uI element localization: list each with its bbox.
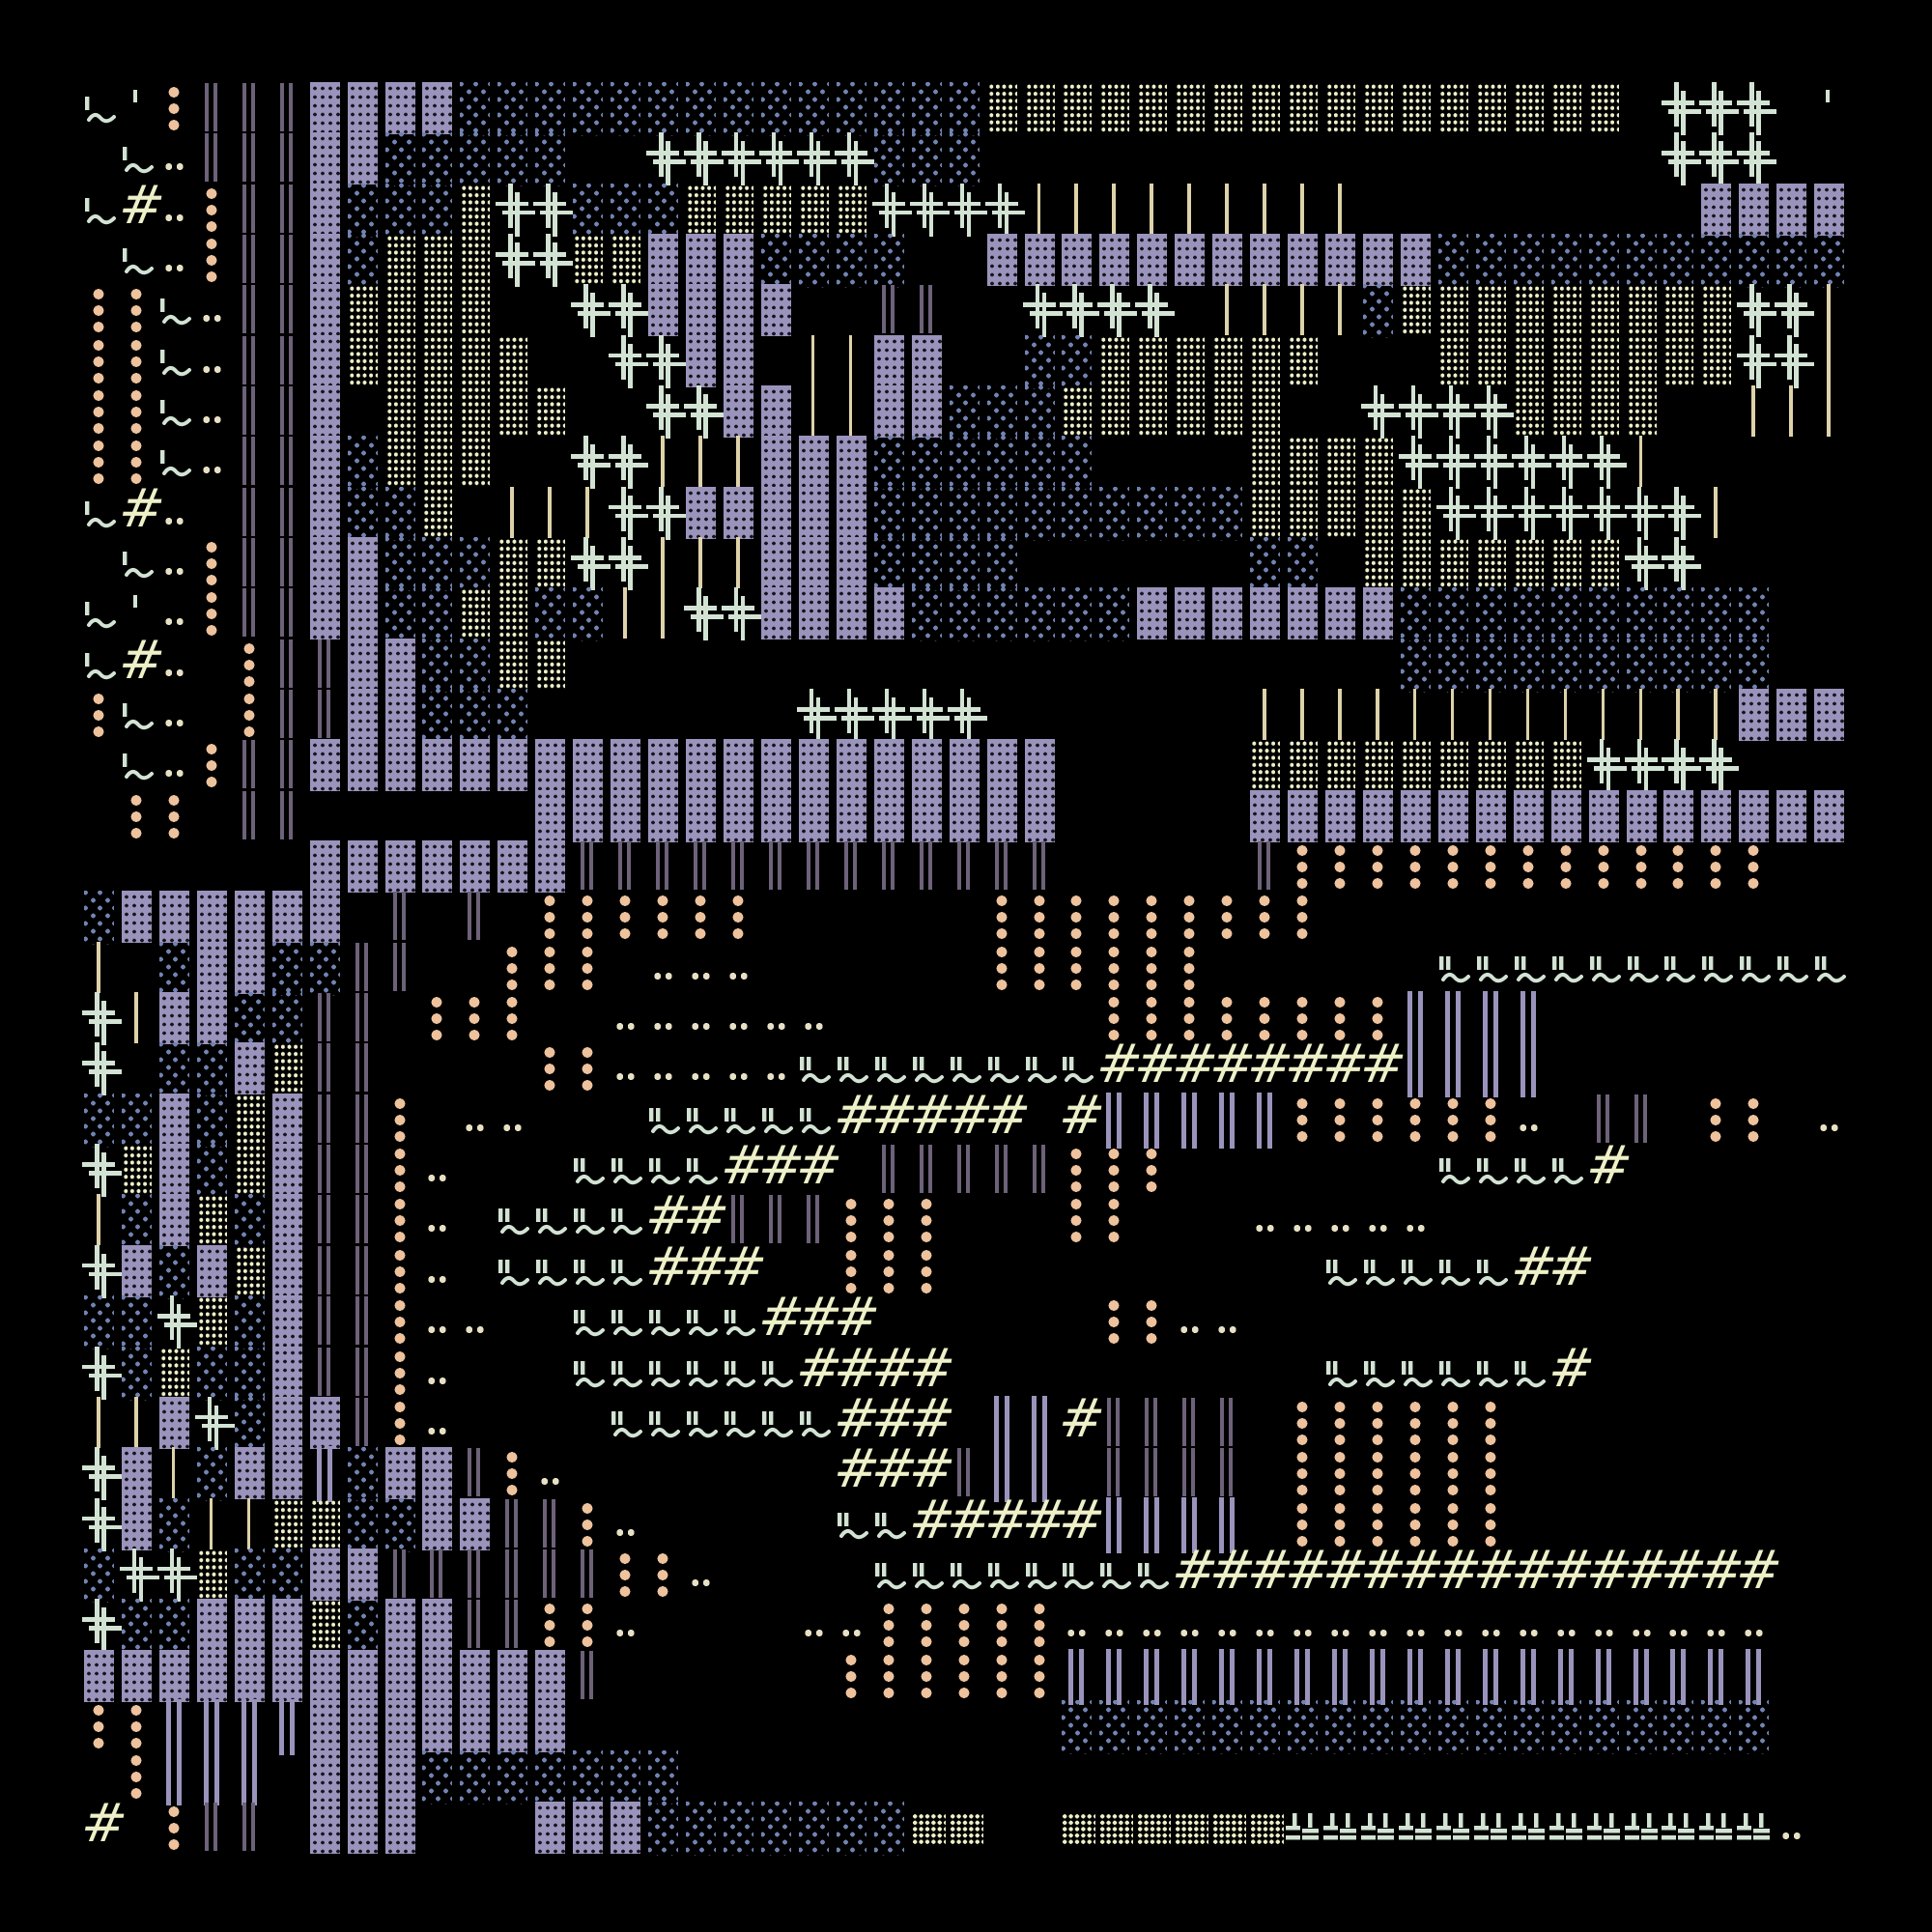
glyph-double-bar-darkpurple	[458, 891, 496, 941]
glyph-woven-block-lavender	[1737, 790, 1775, 840]
glyph-dense-dot-block-yellow	[496, 335, 533, 385]
glyph-woven-block-lavender	[384, 1650, 421, 1700]
glyph-single-bar-cream	[1812, 284, 1850, 334]
glyph-double-bar-darkpurple	[1173, 1447, 1210, 1497]
glyph-dot-column-peach	[609, 1548, 646, 1599]
glyph-sparse-dot-block-blue	[722, 1802, 759, 1852]
glyph-dot-column-peach	[157, 1802, 195, 1852]
glyph-dot-pair-cream	[684, 942, 722, 992]
glyph-sparse-dot-block-blue	[233, 992, 270, 1042]
glyph-dense-dot-block-yellow-short	[1173, 1802, 1210, 1852]
glyph-double-bar-lavender	[1625, 1650, 1662, 1700]
glyph-sparse-dot-block-blue	[985, 537, 1023, 587]
glyph-sparse-dot-block-blue	[835, 234, 872, 284]
glyph-woven-block-lavender	[1474, 790, 1512, 840]
glyph-dense-dot-block-yellow	[458, 436, 496, 486]
glyph-dot-column-peach	[571, 1498, 609, 1548]
glyph-dense-dot-block-yellow	[1549, 537, 1587, 587]
glyph-dot-column-peach	[1699, 840, 1737, 891]
glyph-double-bar-lavender	[1135, 1498, 1173, 1548]
glyph-dense-dot-block-yellow	[1248, 385, 1286, 436]
glyph-dot-pair-cream	[157, 184, 195, 234]
glyph-dense-dot-block-yellow	[1323, 82, 1361, 132]
glyph-sparse-dot-block-blue	[948, 385, 985, 436]
glyph-woven-block-lavender	[346, 1700, 384, 1750]
glyph-tick-tilde-mint	[157, 385, 195, 436]
glyph-dot-column-peach	[384, 1245, 421, 1295]
glyph-woven-block-lavender	[1323, 587, 1361, 638]
glyph-sparse-dot-block-blue	[1248, 537, 1286, 587]
glyph-double-cross-mint	[1023, 284, 1061, 334]
glyph-dense-dot-block-yellow	[1436, 739, 1474, 789]
glyph-sparse-dot-block-blue	[533, 132, 571, 183]
glyph-sparse-dot-block-blue	[872, 1802, 910, 1852]
glyph-double-bar-darkpurple	[346, 1245, 384, 1295]
glyph-double-cross-mint	[82, 1447, 120, 1497]
glyph-dot-pair-cream	[1512, 1599, 1549, 1649]
glyph-single-bar-cream	[1023, 184, 1061, 234]
glyph-sparse-dot-block-blue	[157, 1599, 195, 1649]
glyph-sparse-dot-block-blue	[948, 587, 985, 638]
glyph-sparse-dot-block-blue	[1512, 639, 1549, 689]
glyph-double-cross-mint	[82, 1144, 120, 1194]
glyph-sparse-dot-block-blue	[496, 1750, 533, 1801]
glyph-dot-column-peach	[609, 891, 646, 941]
glyph-double-bar-lavender	[1549, 1650, 1587, 1700]
glyph-single-bar-cream	[797, 335, 835, 385]
glyph-double-cross-mint	[910, 184, 948, 234]
glyph-dot-column-peach	[533, 942, 571, 992]
glyph-double-bar-darkpurple	[533, 1498, 571, 1548]
glyph-double-bar-darkpurple	[872, 284, 910, 334]
glyph-woven-block-lavender	[1286, 790, 1323, 840]
glyph-dense-dot-block-yellow	[1135, 385, 1173, 436]
glyph-sparse-dot-block-blue	[82, 891, 120, 941]
glyph-double-bar-lavender	[1135, 1094, 1173, 1144]
glyph-dense-dot-block-yellow	[496, 639, 533, 689]
glyph-double-cross-mint	[571, 537, 609, 587]
glyph-single-bar-cream	[496, 487, 533, 537]
glyph-woven-block-lavender	[1135, 234, 1173, 284]
glyph-sparse-dot-block-blue	[1549, 587, 1587, 638]
glyph-woven-block-lavender	[420, 1650, 458, 1700]
glyph-sparse-dot-block-blue	[1210, 487, 1248, 537]
glyph-sparse-dot-block-blue	[872, 234, 910, 284]
glyph-dense-dot-block-yellow	[1436, 335, 1474, 385]
glyph-dense-dot-block-yellow	[1173, 82, 1210, 132]
glyph-double-cross-mint	[1775, 335, 1812, 385]
glyph-dot-pair-cream	[1361, 1599, 1399, 1649]
glyph-sparse-dot-block-blue	[1587, 639, 1625, 689]
glyph-sparse-dot-block-blue	[346, 184, 384, 234]
glyph-double-cross-mint	[872, 184, 910, 234]
glyph-sparse-dot-block-blue	[120, 1347, 157, 1397]
glyph-sparse-dot-block-blue	[420, 184, 458, 234]
glyph-dot-column-peach	[533, 1042, 571, 1093]
glyph-sparse-dot-block-blue	[82, 1548, 120, 1599]
glyph-sparse-dot-block-blue	[157, 1042, 195, 1093]
glyph-dot-column-peach	[835, 1650, 872, 1700]
glyph-double-bar-darkpurple	[533, 1548, 571, 1599]
glyph-double-tick-tilde-mint	[609, 1144, 646, 1194]
glyph-dense-dot-block-yellow	[1399, 739, 1436, 789]
glyph-sparse-dot-block-blue	[420, 132, 458, 183]
glyph-woven-block-lavender	[1512, 790, 1549, 840]
glyph-woven-block-lavender	[270, 1347, 308, 1397]
glyph-double-tick-tilde-mint	[1323, 1245, 1361, 1295]
glyph-woven-block-lavender	[1812, 184, 1850, 234]
glyph-woven-block-lavender	[157, 1650, 195, 1700]
glyph-single-bar-cream	[1549, 689, 1587, 739]
glyph-dot-column-peach	[1662, 840, 1699, 891]
glyph-double-tick-tilde-mint	[1812, 942, 1850, 992]
glyph-hash-yellow: #	[985, 1094, 1023, 1144]
glyph-dot-column-peach	[1399, 840, 1436, 891]
glyph-dot-pair-cream	[1512, 1094, 1549, 1144]
glyph-dot-pair-cream	[458, 1295, 496, 1346]
glyph-double-bar-darkpurple	[233, 132, 270, 183]
glyph-dot-pair-cream	[1436, 1599, 1474, 1649]
glyph-dense-dot-block-yellow	[1436, 82, 1474, 132]
glyph-dot-column-peach	[684, 891, 722, 941]
glyph-double-bar-lavender	[1512, 1042, 1549, 1093]
glyph-woven-block-lavender	[308, 537, 346, 587]
glyph-woven-block-lavender	[195, 992, 233, 1042]
glyph-dense-dot-block-yellow	[346, 284, 384, 334]
glyph-sparse-dot-block-blue	[571, 184, 609, 234]
glyph-dense-dot-block-yellow	[1210, 385, 1248, 436]
glyph-dot-pair-cream	[646, 1042, 684, 1093]
glyph-dot-column-peach	[1286, 1397, 1323, 1447]
glyph-sparse-dot-block-blue	[346, 234, 384, 284]
glyph-double-cross-mint	[948, 184, 985, 234]
glyph-sparse-dot-block-blue	[1135, 1700, 1173, 1750]
glyph-woven-block-lavender	[308, 385, 346, 436]
glyph-woven-block-lavender	[420, 1700, 458, 1750]
glyph-woven-block-lavender	[759, 284, 797, 334]
glyph-sparse-dot-block-blue	[420, 1750, 458, 1801]
glyph-tick-tilde-mint	[120, 537, 157, 587]
glyph-dense-dot-block-yellow	[420, 335, 458, 385]
glyph-double-bar-darkpurple	[1135, 1397, 1173, 1447]
glyph-double-cross-mint	[1060, 284, 1097, 334]
glyph-double-cross-mint	[646, 335, 684, 385]
glyph-dot-column-peach	[82, 1700, 120, 1750]
glyph-dot-column-peach	[1135, 1295, 1173, 1346]
glyph-woven-block-lavender	[533, 840, 571, 891]
glyph-dot-pair-cream	[1286, 1599, 1323, 1649]
glyph-sparse-dot-block-blue	[872, 436, 910, 486]
glyph-sparse-dot-block-blue	[1399, 587, 1436, 638]
glyph-dense-dot-block-yellow	[722, 184, 759, 234]
glyph-dense-dot-block-yellow	[233, 1094, 270, 1144]
glyph-tick-tilde-mint	[82, 639, 120, 689]
glyph-single-bar-cream	[1248, 284, 1286, 334]
glyph-dense-dot-block-yellow	[1248, 82, 1286, 132]
glyph-dot-column-peach	[1699, 1094, 1737, 1144]
glyph-dot-column-peach	[985, 891, 1023, 941]
glyph-woven-block-lavender	[346, 739, 384, 789]
glyph-double-bar-darkpurple	[233, 184, 270, 234]
glyph-double-tick-tilde-mint	[571, 1347, 609, 1397]
glyph-double-cross-mint	[872, 689, 910, 739]
glyph-single-bar-cream	[1512, 689, 1549, 739]
glyph-double-bar-darkpurple	[270, 234, 308, 284]
glyph-sparse-dot-block-blue	[1737, 587, 1775, 638]
glyph-woven-block-lavender	[496, 739, 533, 789]
glyph-sparse-dot-block-blue	[872, 537, 910, 587]
glyph-woven-block-lavender	[233, 1650, 270, 1700]
glyph-dot-column-peach	[1135, 891, 1173, 941]
glyph-sparse-dot-block-blue	[458, 537, 496, 587]
glyph-dot-pair-cream	[1060, 1599, 1097, 1649]
glyph-woven-block-lavender	[759, 739, 797, 789]
glyph-woven-block-lavender	[1286, 234, 1323, 284]
glyph-sparse-dot-block-blue	[1097, 587, 1135, 638]
glyph-woven-block-lavender	[797, 790, 835, 840]
glyph-hash-yellow: #	[910, 1094, 948, 1144]
glyph-woven-block-lavender	[120, 1245, 157, 1295]
glyph-dot-column-peach	[120, 1700, 157, 1750]
glyph-woven-block-lavender	[496, 840, 533, 891]
glyph-single-bar-cream	[1625, 436, 1662, 486]
glyph-double-cross-mint	[1737, 82, 1775, 132]
glyph-double-cross-mint	[1512, 436, 1549, 486]
glyph-double-tick-tilde-mint	[571, 1295, 609, 1346]
glyph-single-bar-cream	[1812, 335, 1850, 385]
glyph-double-tick-tilde-mint	[1474, 942, 1512, 992]
glyph-sparse-dot-block-blue	[910, 537, 948, 587]
glyph-dot-column-peach	[120, 790, 157, 840]
glyph-sparse-dot-block-blue	[910, 436, 948, 486]
glyph-woven-block-lavender	[346, 537, 384, 587]
glyph-woven-block-lavender	[308, 436, 346, 486]
glyph-dot-column-peach	[1436, 1094, 1474, 1144]
glyph-double-bar-darkpurple	[195, 132, 233, 183]
glyph-dot-pair-cream	[722, 1042, 759, 1093]
glyph-woven-block-lavender	[684, 739, 722, 789]
glyph-single-bar-cream	[722, 537, 759, 587]
glyph-woven-block-lavender	[195, 1245, 233, 1295]
glyph-sparse-dot-block-blue	[835, 82, 872, 132]
glyph-dot-pair-cream	[157, 639, 195, 689]
glyph-hash-yellow: #	[120, 639, 157, 689]
glyph-double-ground-mint	[1399, 1802, 1436, 1852]
glyph-double-cross-mint	[1699, 82, 1737, 132]
glyph-woven-block-lavender	[1248, 587, 1286, 638]
glyph-double-tick-tilde-mint	[1587, 942, 1625, 992]
glyph-dense-dot-block-yellow	[496, 385, 533, 436]
glyph-sparse-dot-block-blue	[496, 132, 533, 183]
glyph-dense-dot-block-yellow	[1323, 487, 1361, 537]
glyph-dot-column-peach	[1173, 942, 1210, 992]
glyph-woven-block-lavender	[684, 790, 722, 840]
glyph-woven-block-lavender	[420, 840, 458, 891]
glyph-woven-block-lavender	[1173, 234, 1210, 284]
glyph-double-cross-mint	[646, 132, 684, 183]
glyph-dot-column-peach	[1436, 1397, 1474, 1447]
glyph-woven-block-lavender	[346, 82, 384, 132]
glyph-double-tick-tilde-mint	[1436, 1144, 1474, 1194]
glyph-woven-block-lavender	[872, 385, 910, 436]
glyph-dot-column-peach	[1474, 840, 1512, 891]
glyph-double-cross-mint	[496, 184, 533, 234]
glyph-double-cross-mint	[1399, 436, 1436, 486]
glyph-hash-yellow: #	[1248, 1548, 1286, 1599]
glyph-sparse-dot-block-blue	[910, 82, 948, 132]
glyph-dot-column-peach	[948, 1599, 985, 1649]
glyph-dot-column-peach	[157, 82, 195, 132]
glyph-dot-pair-cream	[1210, 1295, 1248, 1346]
glyph-double-bar-darkpurple	[346, 1094, 384, 1144]
glyph-tick-tilde-mint	[120, 689, 157, 739]
glyph-sparse-dot-block-blue	[1625, 639, 1662, 689]
glyph-dense-dot-block-yellow	[1399, 487, 1436, 537]
glyph-double-bar-darkpurple	[270, 184, 308, 234]
glyph-double-bar-lavender	[1436, 992, 1474, 1042]
glyph-dot-pair-cream	[1399, 1194, 1436, 1244]
glyph-double-bar-lavender	[985, 1397, 1023, 1447]
glyph-double-bar-lavender	[1060, 1650, 1097, 1700]
glyph-dot-column-peach	[120, 385, 157, 436]
glyph-sparse-dot-block-blue	[1135, 487, 1173, 537]
glyph-single-bar-cream	[1361, 689, 1399, 739]
glyph-double-tick-tilde-mint	[985, 1548, 1023, 1599]
glyph-double-bar-lavender	[1662, 1650, 1699, 1700]
glyph-dot-column-peach	[120, 335, 157, 385]
glyph-sparse-dot-block-blue	[910, 132, 948, 183]
glyph-woven-block-lavender	[835, 739, 872, 789]
glyph-sparse-dot-block-blue	[1737, 639, 1775, 689]
glyph-hash-yellow: #	[1587, 1144, 1625, 1194]
glyph-sparse-dot-block-blue	[1587, 1700, 1625, 1750]
glyph-dense-dot-block-yellow	[195, 1295, 233, 1346]
glyph-double-tick-tilde-mint	[872, 1498, 910, 1548]
glyph-sparse-dot-block-blue	[571, 82, 609, 132]
glyph-dot-pair-cream	[420, 1347, 458, 1397]
glyph-woven-block-lavender	[759, 385, 797, 436]
glyph-woven-block-lavender	[384, 1700, 421, 1750]
glyph-sparse-dot-block-blue	[420, 537, 458, 587]
glyph-dot-pair-cream	[195, 385, 233, 436]
glyph-single-bar-cream	[157, 1447, 195, 1497]
glyph-dense-dot-block-yellow	[420, 234, 458, 284]
glyph-sparse-dot-block-blue	[233, 1194, 270, 1244]
glyph-dot-column-peach	[1286, 891, 1323, 941]
glyph-double-tick-tilde-mint	[722, 1347, 759, 1397]
glyph-double-bar-darkpurple	[872, 1144, 910, 1194]
glyph-dense-dot-block-yellow	[384, 335, 421, 385]
glyph-woven-block-lavender	[384, 82, 421, 132]
glyph-woven-block-lavender	[1361, 790, 1399, 840]
glyph-double-tick-tilde-mint	[910, 1548, 948, 1599]
glyph-sparse-dot-block-blue	[1023, 335, 1061, 385]
glyph-dot-pair-cream	[646, 992, 684, 1042]
glyph-woven-block-lavender	[233, 1447, 270, 1497]
glyph-sparse-dot-block-blue	[195, 1347, 233, 1397]
glyph-double-tick-tilde-mint	[1023, 1548, 1061, 1599]
glyph-sparse-dot-block-blue	[985, 436, 1023, 486]
glyph-double-bar-darkpurple	[571, 1548, 609, 1599]
glyph-sparse-dot-block-blue	[1662, 1700, 1699, 1750]
glyph-double-bar-lavender	[1173, 1650, 1210, 1700]
glyph-dot-column-peach	[1399, 1447, 1436, 1497]
glyph-dense-dot-block-yellow	[985, 82, 1023, 132]
glyph-double-bar-lavender	[1173, 1094, 1210, 1144]
glyph-dot-pair-cream	[609, 1042, 646, 1093]
glyph-woven-block-lavender	[646, 739, 684, 789]
glyph-woven-block-lavender	[910, 790, 948, 840]
glyph-woven-block-lavender	[233, 891, 270, 941]
glyph-hash-yellow: #	[948, 1498, 985, 1548]
glyph-dot-column-peach	[985, 1599, 1023, 1649]
glyph-double-tick-tilde-mint	[797, 1042, 835, 1093]
glyph-woven-block-lavender	[797, 587, 835, 638]
glyph-double-bar-lavender	[1737, 1650, 1775, 1700]
glyph-sparse-dot-block-blue	[420, 639, 458, 689]
glyph-dot-pair-cream	[1097, 1599, 1135, 1649]
glyph-dot-pair-cream	[759, 1042, 797, 1093]
glyph-woven-block-lavender	[308, 1802, 346, 1852]
glyph-dense-dot-block-yellow	[1361, 739, 1399, 789]
glyph-woven-block-lavender	[308, 1548, 346, 1599]
glyph-sparse-dot-block-blue	[346, 1599, 384, 1649]
glyph-woven-block-lavender	[308, 1397, 346, 1447]
glyph-dot-column-peach	[82, 284, 120, 334]
glyph-double-bar-darkpurple	[346, 992, 384, 1042]
glyph-double-tick-tilde-mint	[1474, 1144, 1512, 1194]
glyph-woven-block-lavender	[759, 436, 797, 486]
glyph-dense-dot-block-yellow	[1474, 335, 1512, 385]
glyph-single-bar-cream	[684, 537, 722, 587]
glyph-sparse-dot-block-blue	[233, 1397, 270, 1447]
glyph-woven-block-lavender	[1399, 790, 1436, 840]
glyph-dense-dot-block-yellow	[1248, 487, 1286, 537]
glyph-woven-block-lavender	[1361, 587, 1399, 638]
glyph-double-bar-lavender	[1286, 1650, 1323, 1700]
glyph-woven-block-lavender	[384, 1447, 421, 1497]
glyph-double-bar-darkpurple	[1097, 1397, 1135, 1447]
glyph-double-tick-tilde-mint	[1436, 1347, 1474, 1397]
glyph-dot-pair-cream	[1248, 1194, 1286, 1244]
glyph-double-bar-darkpurple	[985, 1144, 1023, 1194]
glyph-double-cross-mint	[609, 335, 646, 385]
glyph-sparse-dot-block-blue	[1436, 587, 1474, 638]
glyph-double-cross-mint	[1662, 82, 1699, 132]
glyph-woven-block-lavender	[346, 1548, 384, 1599]
glyph-woven-block-lavender	[308, 1750, 346, 1801]
glyph-double-bar-lavender	[1210, 1650, 1248, 1700]
glyph-dot-pair-cream	[1587, 1599, 1625, 1649]
glyph-dot-pair-cream	[1135, 1599, 1173, 1649]
glyph-hash-yellow: #	[1060, 1094, 1097, 1144]
glyph-tick-tilde-mint	[82, 487, 120, 537]
glyph-sparse-dot-block-blue	[157, 942, 195, 992]
glyph-woven-block-lavender	[872, 739, 910, 789]
glyph-double-bar-lavender	[1699, 1650, 1737, 1700]
glyph-double-bar-darkpurple	[233, 234, 270, 284]
glyph-sparse-dot-block-blue	[948, 132, 985, 183]
glyph-sparse-dot-block-blue	[1474, 1700, 1512, 1750]
glyph-dense-dot-block-yellow	[1361, 82, 1399, 132]
glyph-sparse-dot-block-blue	[985, 487, 1023, 537]
glyph-hash-yellow: #	[120, 487, 157, 537]
glyph-sparse-dot-block-blue	[1512, 587, 1549, 638]
glyph-sparse-dot-block-blue	[82, 1295, 120, 1346]
glyph-woven-block-lavender	[458, 840, 496, 891]
glyph-dense-dot-block-yellow	[1060, 385, 1097, 436]
glyph-dot-column-peach	[1323, 1397, 1361, 1447]
